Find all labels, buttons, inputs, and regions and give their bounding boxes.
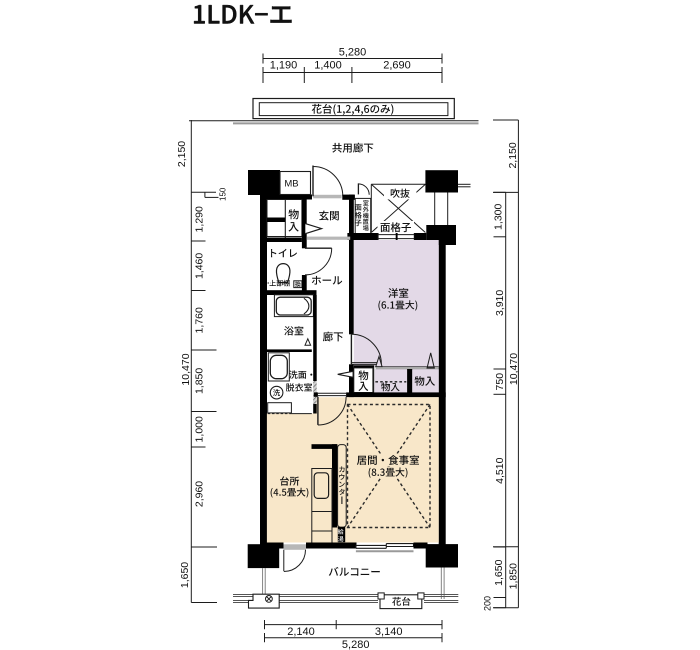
svg-text:1,460: 1,460 [194, 253, 206, 279]
svg-text:10,470: 10,470 [180, 353, 192, 385]
svg-text:5,280: 5,280 [339, 46, 367, 58]
svg-text:1,650: 1,650 [493, 559, 505, 585]
svg-text:1,400: 1,400 [314, 59, 342, 71]
svg-text:2,150: 2,150 [176, 141, 188, 167]
svg-text:1,300: 1,300 [493, 204, 505, 230]
svg-text:150: 150 [218, 187, 227, 201]
svg-text:10,470: 10,470 [508, 353, 520, 385]
svg-text:4,510: 4,510 [494, 457, 506, 483]
svg-text:750: 750 [494, 373, 506, 391]
svg-text:1,190: 1,190 [270, 59, 298, 71]
svg-text:3,140: 3,140 [375, 626, 403, 638]
svg-text:2,960: 2,960 [194, 481, 206, 507]
svg-text:MB: MB [284, 179, 298, 190]
svg-text:1,850: 1,850 [507, 563, 519, 589]
svg-text:2,140: 2,140 [287, 626, 315, 638]
svg-text:2,150: 2,150 [507, 142, 519, 168]
svg-text:1,290: 1,290 [194, 206, 206, 232]
svg-text:1,850: 1,850 [194, 368, 206, 394]
svg-text:200: 200 [483, 596, 493, 611]
svg-text:1,650: 1,650 [179, 562, 191, 588]
svg-text:1,760: 1,760 [194, 307, 206, 333]
svg-text:3,910: 3,910 [494, 290, 506, 316]
svg-text:1,000: 1,000 [194, 416, 206, 442]
svg-text:5,280: 5,280 [342, 639, 370, 650]
svg-text:2,690: 2,690 [383, 59, 411, 71]
